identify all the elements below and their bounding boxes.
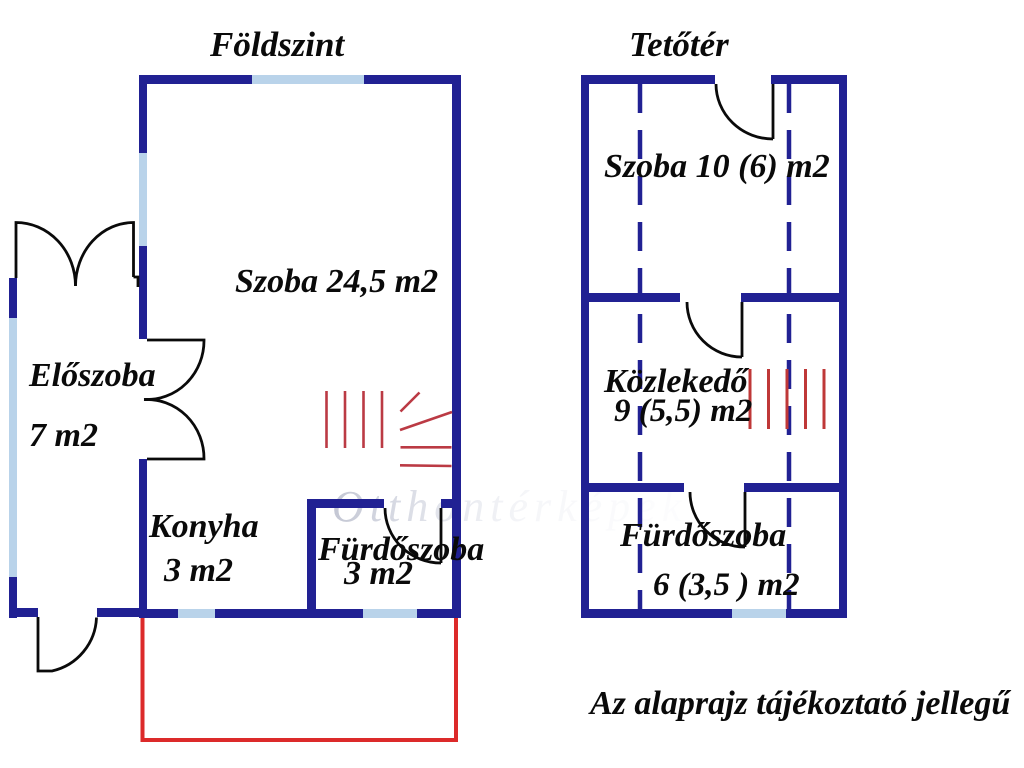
- svg-text:9 (5,5) m2: 9 (5,5) m2: [614, 393, 752, 429]
- svg-text:3 m2: 3 m2: [343, 555, 413, 592]
- svg-text:7 m2: 7 m2: [29, 417, 98, 454]
- svg-text:Tetőtér: Tetőtér: [629, 25, 729, 64]
- svg-text:Földszint: Földszint: [209, 25, 345, 64]
- svg-text:Az alaprajz tájékoztató jelleg: Az alaprajz tájékoztató jellegű: [588, 685, 1011, 722]
- svg-text:6 (3,5 ) m2: 6 (3,5 ) m2: [653, 567, 800, 603]
- svg-text:3 m2: 3 m2: [163, 552, 233, 589]
- svg-text:Szoba 10 (6) m2: Szoba 10 (6) m2: [604, 148, 830, 185]
- svg-text:Konyha: Konyha: [148, 508, 259, 545]
- svg-text:Előszoba: Előszoba: [28, 357, 156, 394]
- svg-text:Szoba 24,5 m2: Szoba 24,5 m2: [235, 263, 438, 300]
- svg-text:Fürdőszoba: Fürdőszoba: [619, 517, 786, 554]
